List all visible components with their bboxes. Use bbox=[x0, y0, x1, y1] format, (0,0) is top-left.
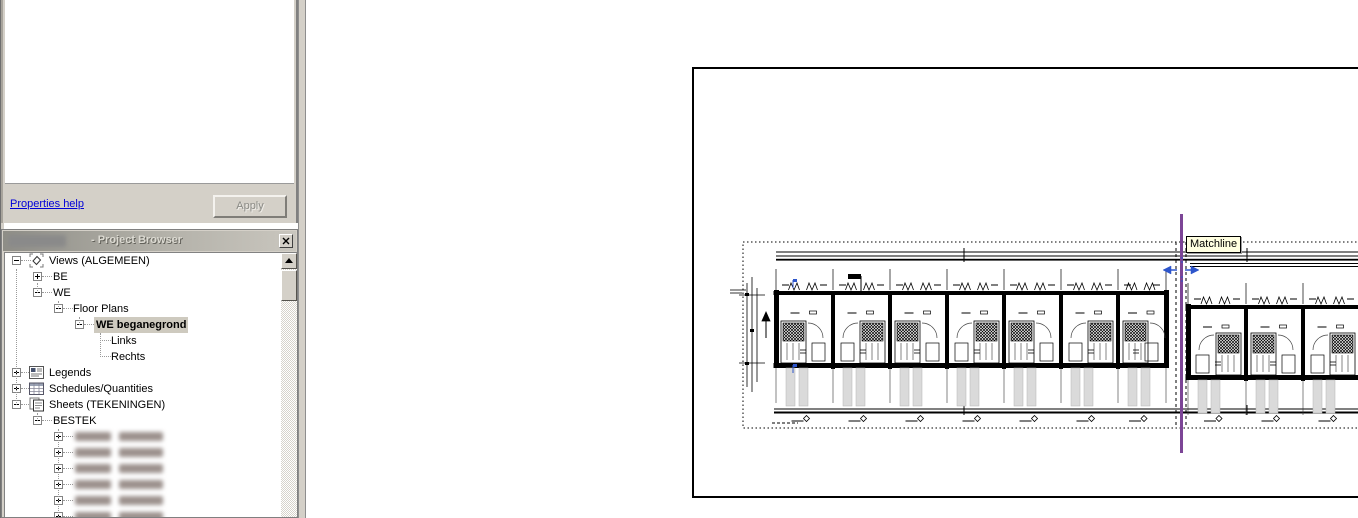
close-icon[interactable] bbox=[279, 234, 293, 248]
tree-item-bestek[interactable]: BESTEK bbox=[5, 413, 297, 429]
tree-item-be[interactable]: BE bbox=[5, 269, 297, 285]
tree-item-label: Sheets (TEKENINGEN) bbox=[49, 397, 165, 413]
project-browser-tree: Views (ALGEMEEN)BEWEFloor PlansWE begane… bbox=[4, 252, 297, 517]
redacted-sheet-name bbox=[75, 464, 111, 473]
tree-connector bbox=[63, 436, 73, 437]
tree-guide-line bbox=[100, 333, 101, 357]
redacted-sheet-name bbox=[75, 448, 111, 457]
tree-item-label: Views (ALGEMEEN) bbox=[49, 253, 150, 269]
tree-connector bbox=[100, 340, 111, 341]
tree-item-redacted[interactable] bbox=[5, 477, 297, 493]
properties-bottom-bar: Properties help Apply bbox=[5, 185, 294, 221]
redacted-sheet-name bbox=[119, 448, 163, 457]
tree-item-redacted[interactable] bbox=[5, 509, 297, 517]
floor-plan-sheet-view[interactable] bbox=[692, 67, 1358, 498]
tree-item-we-beganegrond[interactable]: WE beganegrond bbox=[5, 317, 297, 333]
redacted-sheet-name bbox=[119, 480, 163, 489]
redacted-sheet-name bbox=[119, 512, 163, 517]
tree-item-schedules-quantities[interactable]: Schedules/Quantities bbox=[5, 381, 297, 397]
tree-item-redacted[interactable] bbox=[5, 429, 297, 445]
redacted-sheet-name bbox=[75, 432, 111, 441]
tree-guide-line bbox=[79, 317, 80, 325]
palette-divider bbox=[298, 0, 306, 518]
tree-item-legends[interactable]: Legends bbox=[5, 365, 297, 381]
properties-empty-area bbox=[5, 0, 294, 184]
properties-help-link[interactable]: Properties help bbox=[10, 198, 84, 210]
redacted-project-name bbox=[8, 235, 66, 247]
tree-item-redacted[interactable] bbox=[5, 461, 297, 477]
tree-item-we[interactable]: WE bbox=[5, 285, 297, 301]
tree-guide-line bbox=[58, 429, 59, 517]
tree-item-label: Legends bbox=[49, 365, 91, 381]
tree-item-redacted[interactable] bbox=[5, 493, 297, 509]
tree-connector bbox=[63, 516, 73, 517]
apply-button[interactable]: Apply bbox=[213, 195, 287, 218]
redacted-sheet-name bbox=[75, 512, 111, 517]
project-browser-titlebar[interactable]: - Project Browser bbox=[3, 231, 296, 251]
tree-item-label: BE bbox=[53, 269, 68, 285]
tree-item-rechts[interactable]: Rechts bbox=[5, 349, 297, 365]
tree-connector bbox=[100, 356, 111, 357]
tree-connector bbox=[42, 292, 52, 293]
schedules-icon bbox=[29, 381, 44, 396]
redacted-sheet-name bbox=[75, 480, 111, 489]
tree-item-label: BESTEK bbox=[53, 413, 96, 429]
tree-guide-line bbox=[58, 301, 59, 309]
tree-item-label: WE beganegrond bbox=[94, 317, 188, 333]
tree-connector bbox=[84, 324, 94, 325]
tree-item-redacted[interactable] bbox=[5, 445, 297, 461]
project-browser-panel: - Project Browser Views (ALGEMEEN)BEWEFl… bbox=[1, 229, 298, 518]
tree-item-label: Schedules/Quantities bbox=[49, 381, 153, 397]
redacted-sheet-name bbox=[119, 496, 163, 505]
redacted-sheet-name bbox=[119, 464, 163, 473]
tree-item-views-algemeen-[interactable]: Views (ALGEMEEN) bbox=[5, 253, 297, 269]
sheets-icon bbox=[29, 397, 44, 412]
properties-panel: Properties help Apply bbox=[1, 0, 298, 223]
legends-icon bbox=[29, 365, 44, 380]
tree-connector bbox=[63, 468, 73, 469]
project-browser-title: - Project Browser bbox=[91, 234, 182, 246]
views-icon bbox=[29, 253, 44, 268]
expand-plus-icon[interactable] bbox=[33, 272, 42, 281]
scroll-up-arrow-icon bbox=[285, 258, 293, 263]
matchline[interactable] bbox=[1178, 214, 1185, 453]
tree-item-links[interactable]: Links bbox=[5, 333, 297, 349]
tree-connector bbox=[63, 308, 73, 309]
tree-connector bbox=[42, 276, 52, 277]
redacted-sheet-name bbox=[75, 496, 111, 505]
tree-connector bbox=[63, 484, 73, 485]
tree-guide-line bbox=[37, 413, 38, 421]
scroll-up-button[interactable] bbox=[281, 253, 297, 269]
tree-connector bbox=[63, 452, 73, 453]
matchline-drag-handle-icon[interactable] bbox=[1161, 262, 1203, 278]
tree-item-label: Floor Plans bbox=[73, 301, 129, 317]
drawing-canvas[interactable]: Matchline bbox=[306, 0, 1358, 518]
application-window: Properties help Apply - Project Browser … bbox=[0, 0, 1358, 518]
tree-guide-line bbox=[37, 283, 38, 293]
tree-connector bbox=[42, 420, 52, 421]
collapse-minus-icon[interactable] bbox=[12, 256, 21, 265]
tree-item-sheets-tekeningen-[interactable]: Sheets (TEKENINGEN) bbox=[5, 397, 297, 413]
tree-guide-line bbox=[16, 269, 17, 405]
redacted-sheet-name bbox=[119, 432, 163, 441]
tree-item-label: Links bbox=[111, 333, 137, 349]
tree-item-label: WE bbox=[53, 285, 71, 301]
tree-connector bbox=[63, 500, 73, 501]
tree-item-floor-plans[interactable]: Floor Plans bbox=[5, 301, 297, 317]
scrollbar-thumb[interactable] bbox=[281, 270, 297, 301]
matchline-tooltip: Matchline bbox=[1186, 236, 1241, 253]
tree-item-label: Rechts bbox=[111, 349, 145, 365]
vertical-scrollbar[interactable] bbox=[281, 253, 297, 517]
